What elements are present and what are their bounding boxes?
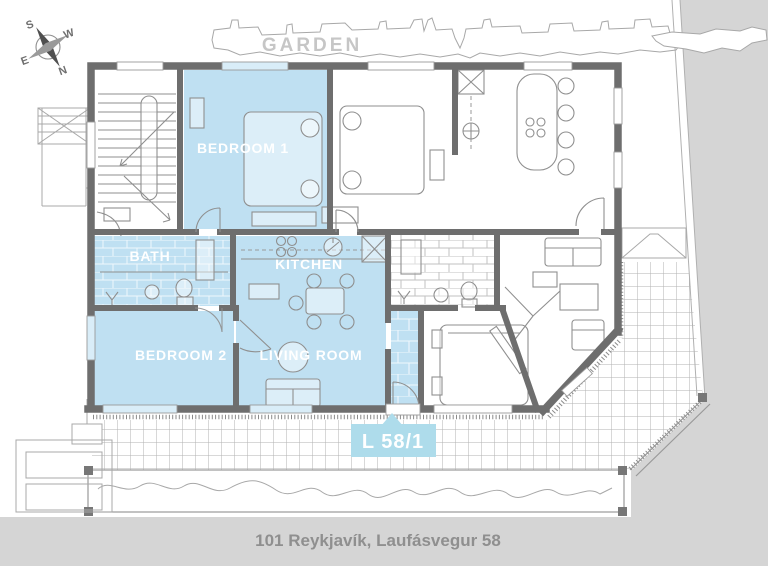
entry-door-opening (386, 404, 420, 415)
unit-badge-label: L 58/1 (362, 431, 424, 453)
room-label-bedroom1: BEDROOM 1 (197, 140, 289, 156)
window (103, 405, 177, 413)
garden-label: GARDEN (262, 35, 362, 56)
window (87, 122, 95, 168)
floor-plan: GARDEN S W E N (0, 0, 768, 566)
window (222, 62, 288, 70)
caption: 101 Reykjavík, Laufásvegur 58 (255, 531, 501, 550)
room-label-bath: BATH (129, 248, 170, 264)
hall-tile-pattern (391, 311, 418, 409)
window (250, 405, 312, 413)
window (117, 62, 163, 70)
room-label-living-room: LIVING ROOM (260, 347, 363, 363)
room-label-kitchen: KITCHEN (275, 256, 343, 272)
planting-bed-border (88, 470, 624, 512)
window (368, 62, 434, 70)
window (87, 316, 95, 360)
room-label-bedroom2: BEDROOM 2 (135, 347, 227, 363)
window (524, 62, 572, 70)
floor-plan-canvas: GARDEN S W E N (0, 0, 768, 566)
window (614, 152, 622, 188)
bay-roof-outline (622, 228, 686, 258)
window (614, 88, 622, 124)
window (434, 405, 512, 413)
